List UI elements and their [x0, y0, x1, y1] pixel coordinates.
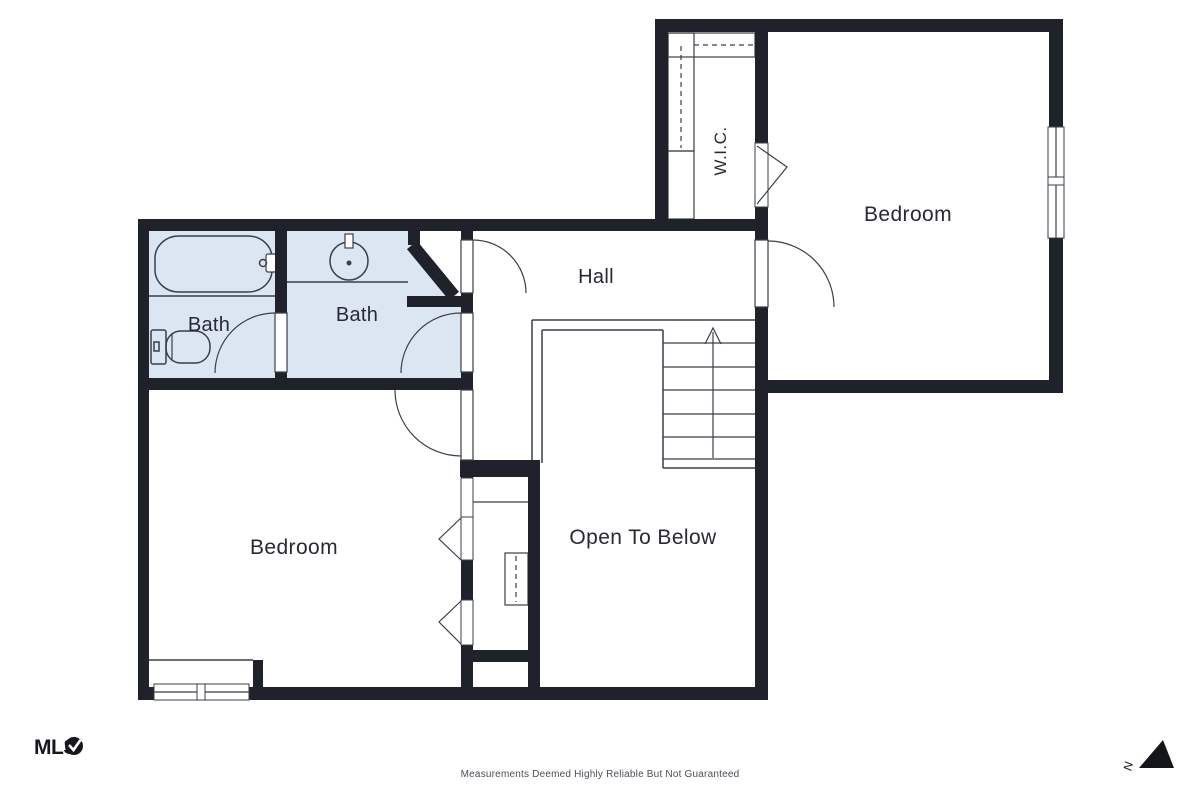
mls-logo: MLS — [34, 736, 83, 759]
wall-corridor-bottom — [460, 460, 540, 477]
wall-bottom-left-bit — [138, 687, 155, 700]
sink-drain-icon — [347, 261, 352, 266]
window-bedroom-upper — [1048, 127, 1064, 238]
wall-main-band — [138, 219, 768, 231]
wall-left-exterior — [138, 231, 149, 700]
open-to-below-railing — [532, 320, 755, 463]
closet-opening-2 — [461, 600, 473, 645]
bedroom-upper-door-swing — [768, 241, 834, 307]
disclaimer-text: Measurements Deemed Highly Reliable But … — [461, 769, 740, 780]
wall-hall-closet-bottom — [407, 296, 473, 307]
north-arrow-icon — [1139, 740, 1174, 768]
north-compass-icon: N — [1120, 740, 1174, 772]
room-label-bedroom-lower: Bedroom — [250, 536, 338, 559]
wall-closet-bottom — [461, 650, 540, 662]
room-label-hall: Hall — [578, 266, 614, 288]
bedroom-lower-door — [461, 390, 473, 460]
wall-right-column — [755, 307, 768, 700]
closet-opening-1 — [461, 517, 473, 560]
sink-faucet-icon — [345, 234, 353, 248]
mls-logo-swoosh-icon — [65, 737, 83, 755]
hall-closet-door — [461, 240, 473, 293]
room-label-bedroom-upper: Bedroom — [864, 203, 952, 226]
tub-faucet-icon — [266, 254, 276, 272]
wall-bedroom-right-upper — [1049, 19, 1063, 127]
wall-window-recess-stub — [253, 660, 263, 687]
bath-left-door — [275, 313, 287, 372]
room-label-open-to-below: Open To Below — [569, 526, 717, 549]
wall-hall-closet-stub — [408, 219, 420, 245]
bath-right-door — [461, 313, 473, 372]
wall-center-column-d — [461, 560, 473, 600]
wall-bedroom-right-lower — [1049, 237, 1063, 393]
window-bedroom-lower — [154, 684, 249, 700]
wall-center-column-b — [461, 372, 473, 390]
wall-bath-divider-lower — [275, 372, 287, 390]
wall-center-column-stub — [461, 231, 473, 240]
floor-plan-svg: Bedroom Bedroom Hall Bath Bath W.I.C. Op… — [0, 0, 1200, 800]
window-mullion — [1048, 177, 1064, 185]
wall-closet-right — [528, 477, 540, 700]
room-label-bath-right: Bath — [336, 304, 378, 326]
wall-bedroom-top — [655, 19, 1063, 32]
wall-bedroom-bottom — [755, 380, 1063, 393]
floor-plan-page: Bedroom Bedroom Hall Bath Bath W.I.C. Op… — [0, 0, 1200, 800]
wall-bath-bottom — [138, 378, 473, 390]
bedroom-lower-door-swing — [395, 390, 461, 456]
wall-bottom — [248, 687, 768, 700]
wic-lower-shelf — [668, 151, 694, 219]
stairs — [663, 328, 755, 468]
bedroom-closet-shelving — [473, 502, 528, 605]
hall-closet-door-swing — [473, 240, 526, 293]
wall-bath-divider-upper — [275, 231, 287, 313]
closet-jamb-panel — [461, 478, 473, 517]
window-mullion — [197, 684, 205, 700]
bedroom-upper-door — [755, 240, 768, 307]
wall-wic-right-upper — [755, 32, 768, 143]
closet-chevron-icon-1 — [439, 518, 461, 560]
room-label-wic: W.I.C. — [711, 126, 730, 175]
north-letter: N — [1120, 760, 1135, 771]
wic-shelving — [668, 33, 755, 219]
wall-block-left — [655, 19, 668, 231]
room-label-bath-left: Bath — [188, 314, 230, 336]
closet-chevron-icon-2 — [439, 601, 461, 644]
